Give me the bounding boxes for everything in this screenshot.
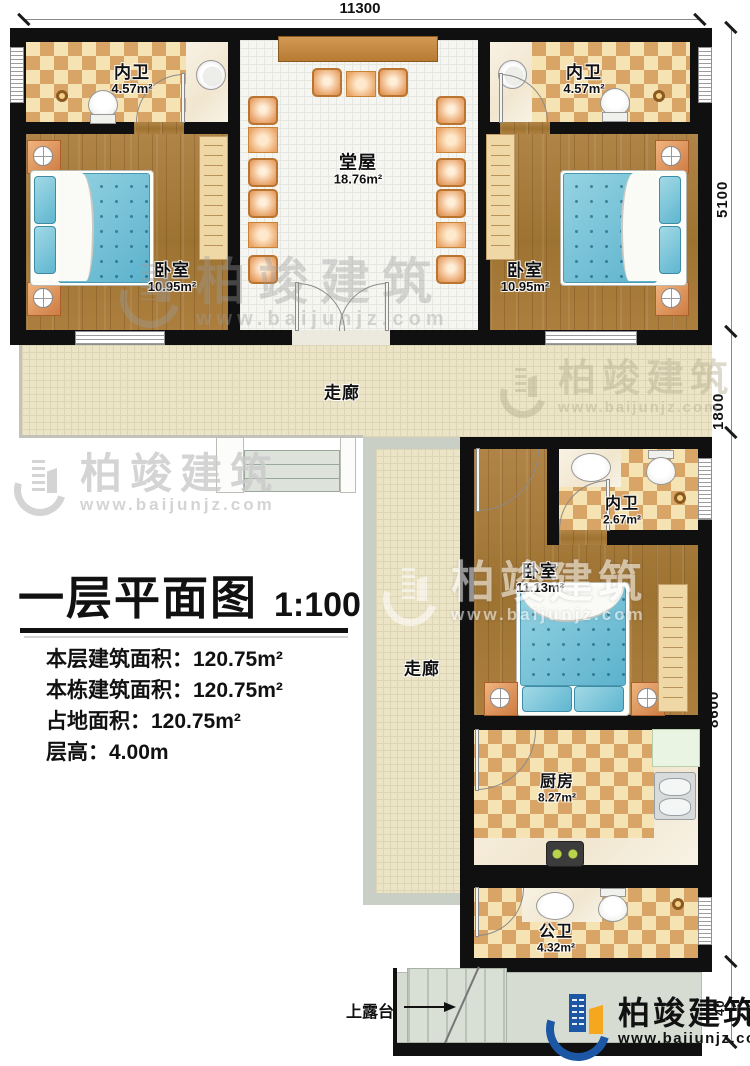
plan-title: 一层平面图 <box>18 562 258 628</box>
towel-ring-icon <box>674 492 686 504</box>
floor-plan: 上露台 内卫4.57m² 内卫4.57m² 堂屋18.76m² 卧室10.95m… <box>0 0 750 1066</box>
corridor-horizontal-floor <box>22 345 712 437</box>
terrace-label: 上露台 <box>346 998 394 1022</box>
lamp-icon <box>661 288 681 308</box>
company-name: 柏竣建筑 <box>618 997 750 1031</box>
stove-icon <box>546 841 584 867</box>
step-line <box>245 464 339 465</box>
logo-building-orange <box>589 1005 603 1034</box>
pillow <box>574 686 624 712</box>
lamp-icon <box>33 146 53 166</box>
toilet-tank <box>602 112 628 122</box>
window <box>698 47 712 103</box>
lamp-icon <box>490 688 510 708</box>
door-leaf <box>386 283 388 330</box>
plan-scale: 1:100 <box>274 586 361 628</box>
pillow <box>34 226 56 274</box>
room-label-bath-mid: 内卫2.67m² <box>603 495 641 526</box>
towel-ring-icon <box>653 90 665 102</box>
terrace-arrow-icon <box>444 1002 456 1012</box>
watermark-logo-icon <box>14 452 66 514</box>
room-label-hall: 堂屋18.76m² <box>334 153 382 188</box>
wardrobe <box>658 584 688 712</box>
wardrobe <box>486 134 515 260</box>
kitchen-counter <box>652 729 700 767</box>
info-floor-area: 本层建筑面积：120.75m² <box>46 644 283 675</box>
window <box>698 897 712 945</box>
lamp-icon <box>33 288 53 308</box>
door-leaf <box>476 730 478 790</box>
bath-tr-door-gap <box>500 122 550 134</box>
nightstand <box>655 140 689 174</box>
towel-ring-icon <box>56 90 68 102</box>
bed-blanket <box>621 173 657 281</box>
sink-icon <box>571 453 611 482</box>
entry-post-left <box>216 437 244 493</box>
info-footprint-area: 占地面积：120.75m² <box>46 706 283 737</box>
window <box>75 331 165 345</box>
dimension-line-top <box>24 19 700 20</box>
room-label-bed-tl: 卧室10.95m² <box>148 261 196 295</box>
room-label-corridor-h: 走廊 <box>324 383 360 402</box>
nightstand <box>27 282 61 316</box>
dimension-right-upper: 5100 <box>714 156 731 218</box>
terrace-label-text: 上露台 <box>346 1004 394 1021</box>
window <box>545 331 637 345</box>
company-logo: 柏竣建筑 www.baijunjz.com <box>546 992 750 1052</box>
info-building-area: 本栋建筑面积：120.75m² <box>46 675 283 706</box>
hall-door-gap <box>292 330 390 345</box>
title-underline <box>20 628 348 633</box>
title-underline-shadow <box>24 636 348 638</box>
nightstand <box>484 682 518 716</box>
pillow <box>522 686 572 712</box>
sink-icon <box>196 60 226 90</box>
door-leaf <box>477 449 479 511</box>
bed-blanket <box>58 173 94 281</box>
corridor-bottom-edge <box>19 435 363 438</box>
toilet-icon <box>598 895 628 922</box>
company-url: www.baijunjz.com <box>618 1031 750 1047</box>
plan-title-row: 一层平面图 1:100 <box>18 562 361 628</box>
room-label-bath-tr: 内卫4.57m² <box>563 63 604 97</box>
sink-basin <box>659 798 691 816</box>
dimension-right-lower: 8600 <box>705 664 722 728</box>
corridor-left-edge <box>19 345 22 437</box>
toilet-tank <box>90 114 116 124</box>
pillow <box>659 226 681 274</box>
nightstand <box>655 282 689 316</box>
door-leaf <box>296 283 298 330</box>
pillow <box>659 176 681 224</box>
towel-ring-icon <box>672 898 684 910</box>
room-label-bath-public: 公卫4.32m² <box>537 923 575 954</box>
logo-building-blue <box>569 994 586 1032</box>
terrace-arrow-line <box>404 1006 446 1008</box>
info-lines: 本层建筑面积：120.75m² 本栋建筑面积：120.75m² 占地面积：120… <box>46 644 283 768</box>
door-leaf <box>476 888 478 936</box>
dimension-line-right <box>731 26 732 1044</box>
sink-basin <box>659 778 691 796</box>
sideboard-table <box>278 36 438 62</box>
window <box>698 458 712 520</box>
watermark-url: www.baijunjz.com <box>80 496 280 514</box>
lamp-icon <box>661 146 681 166</box>
nightstand <box>27 140 61 174</box>
company-logo-icon <box>546 992 610 1052</box>
dimension-right-mid: 1800 <box>710 372 727 430</box>
room-label-kitchen: 厨房8.27m² <box>538 773 576 804</box>
room-label-bed-mid: 卧室11.13m² <box>516 562 564 596</box>
kitchen-sink-icon <box>654 772 696 820</box>
toilet-icon <box>646 457 676 485</box>
step-line <box>245 478 339 479</box>
room-label-corridor-v: 走廊 <box>404 659 440 678</box>
entry-post-right <box>340 437 356 493</box>
bath-tl-door-gap <box>134 122 184 134</box>
room-label-bath-tl: 内卫4.57m² <box>111 63 152 97</box>
wardrobe <box>199 136 228 260</box>
window <box>10 47 24 103</box>
room-label-bed-tr: 卧室10.95m² <box>501 261 549 295</box>
door-leaf <box>500 74 502 122</box>
bath-mid-door-gap <box>559 530 607 545</box>
dimension-top: 11300 <box>280 0 440 17</box>
lamp-icon <box>637 688 657 708</box>
door-leaf <box>182 74 184 122</box>
info-storey-height: 层高：4.00m <box>46 737 283 768</box>
pillow <box>34 176 56 224</box>
bath-mid-wall <box>547 437 559 545</box>
sink-icon <box>536 892 574 920</box>
entry-steps <box>244 450 340 492</box>
